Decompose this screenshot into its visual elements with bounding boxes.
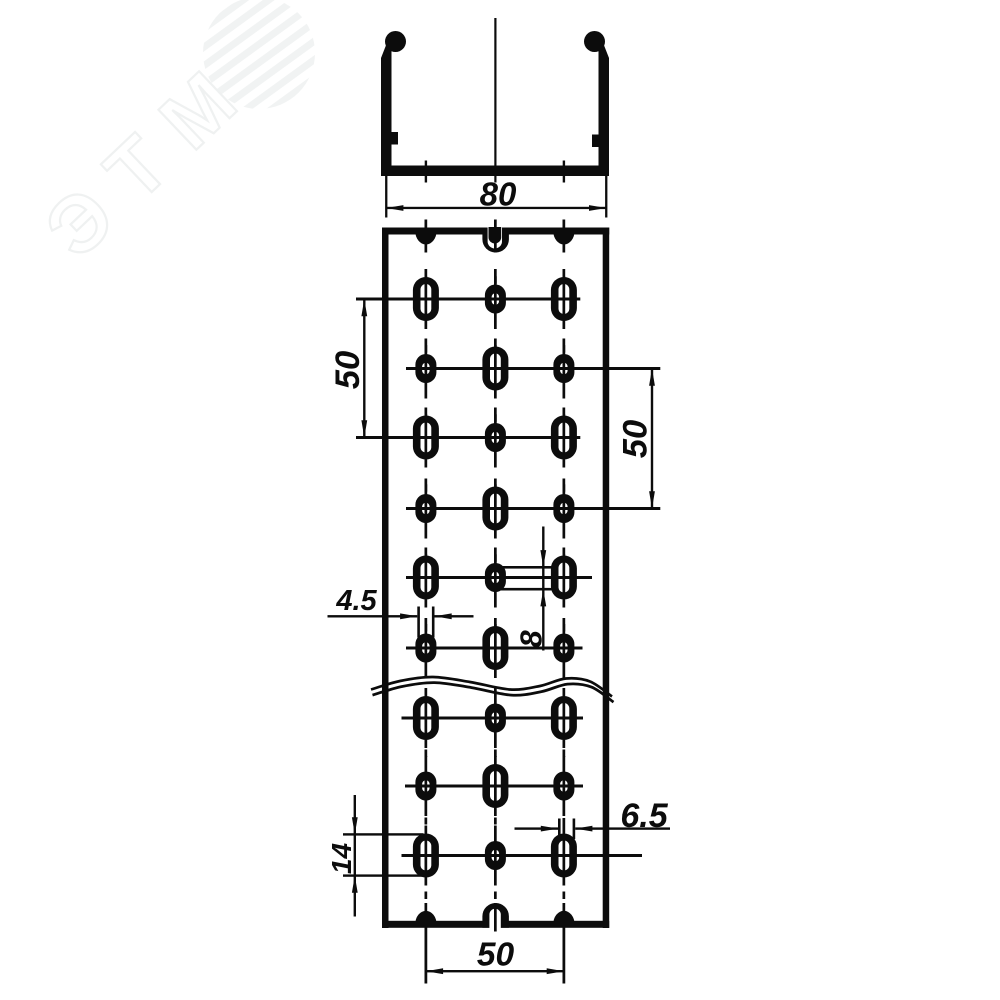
svg-text:80: 80	[480, 176, 517, 213]
svg-text:ЭТМ: ЭТМ	[28, 37, 271, 274]
svg-text:50: 50	[477, 937, 515, 974]
svg-text:8: 8	[514, 630, 549, 648]
svg-text:6.5: 6.5	[620, 797, 668, 835]
svg-text:50: 50	[617, 420, 655, 458]
svg-text:50: 50	[329, 351, 367, 389]
svg-text:4.5: 4.5	[335, 585, 377, 617]
svg-text:14: 14	[326, 843, 357, 875]
